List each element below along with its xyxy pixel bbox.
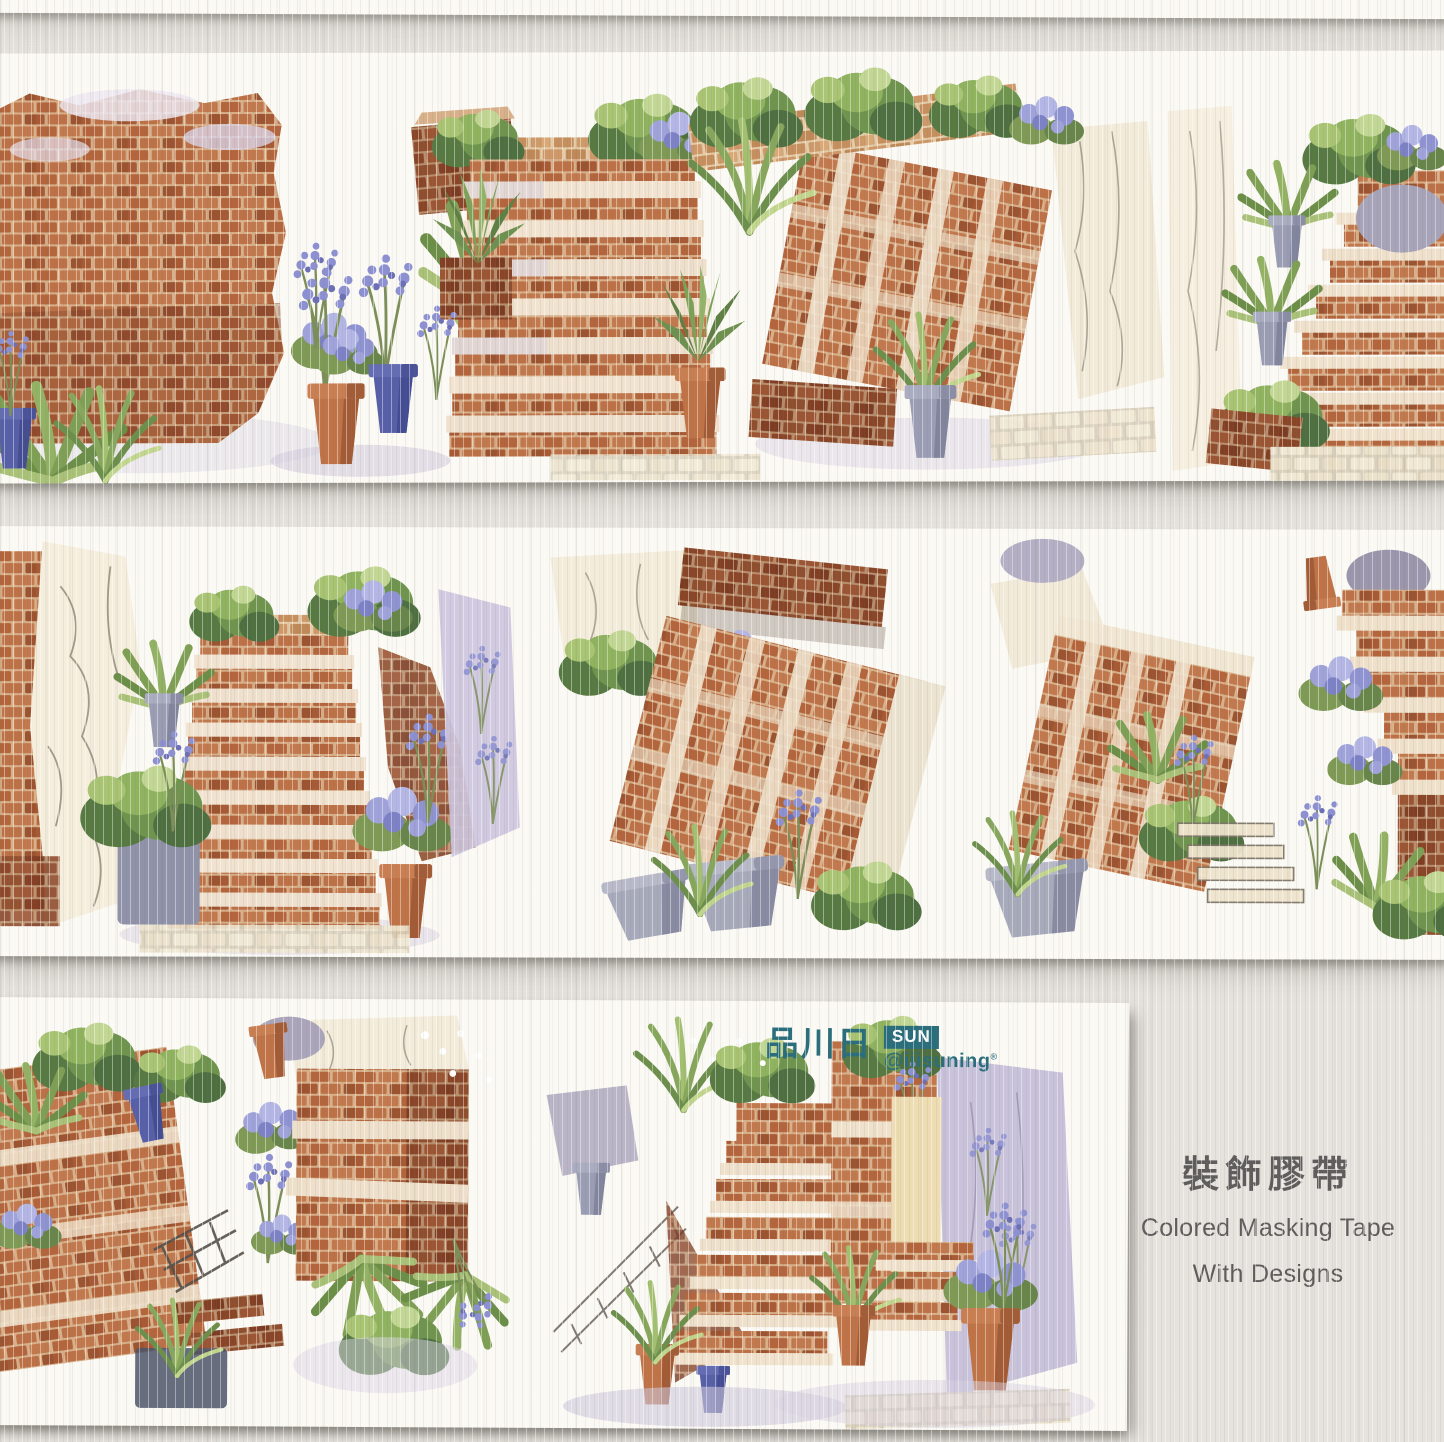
caption-subtitle-line2: With Designs bbox=[1098, 1260, 1438, 1289]
pencil-railing-sketch bbox=[553, 1206, 686, 1353]
caption-subtitle-line1: Colored Masking Tape bbox=[1098, 1214, 1438, 1243]
brand-logo: 品川日 SUN @iiisuning® bbox=[765, 1025, 998, 1073]
tape-strip-3: 品川日 SUN @iiisuning® bbox=[0, 997, 1129, 1431]
brand-name-en-badge: SUN bbox=[884, 1026, 939, 1049]
scene-staircase-with-pots bbox=[80, 566, 521, 956]
scene-overhang-staircase bbox=[549, 547, 946, 945]
tape-strip-top-edge bbox=[0, 0, 1444, 19]
caption-title-cjk: 裝飾膠帶 bbox=[1098, 1144, 1438, 1198]
brand-handle: @iiisuning® bbox=[884, 1050, 998, 1074]
scene-right-staircase bbox=[1168, 105, 1444, 481]
scene-corner-stairs bbox=[1296, 550, 1444, 940]
scene-left-stair-mass bbox=[0, 1022, 286, 1409]
registered-mark: ® bbox=[991, 1052, 998, 1062]
tape-strip-2-artwork bbox=[0, 526, 1444, 960]
poster: 品川日 SUN @iiisuning® 裝飾膠帶 Colored Masking… bbox=[0, 0, 1444, 1442]
scene-stair-fragment bbox=[975, 539, 1305, 941]
scene-angled-staircase bbox=[688, 67, 1165, 470]
tape-strip-2 bbox=[0, 526, 1444, 960]
tape-strip-1 bbox=[0, 50, 1444, 483]
brand-name-cjk: 品川日 bbox=[765, 1025, 873, 1065]
tape-strip-1-artwork bbox=[0, 50, 1444, 483]
product-caption: 裝飾膠帶 Colored Masking Tape With Designs bbox=[1098, 1144, 1438, 1306]
